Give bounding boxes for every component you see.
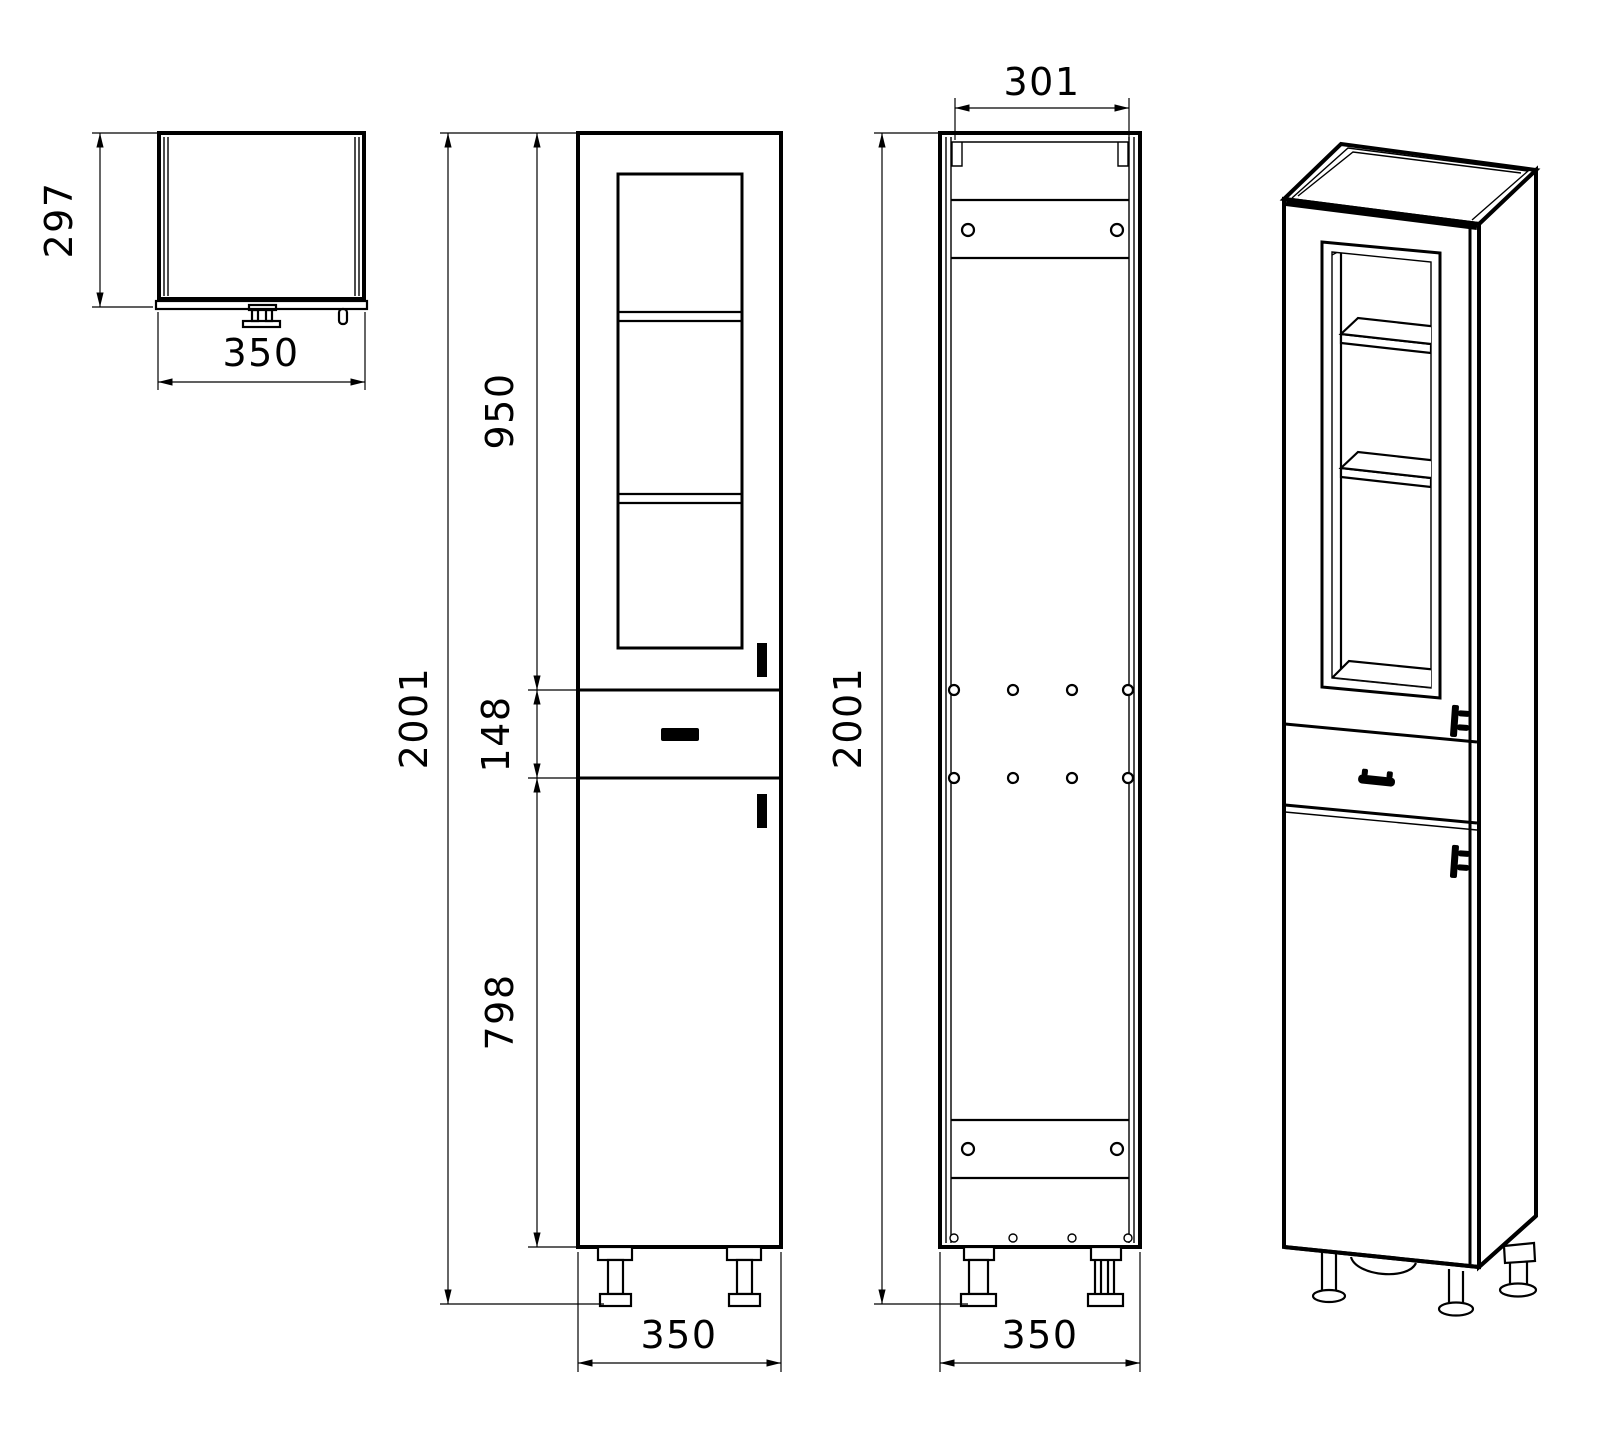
back-view-carcass: [940, 133, 1140, 1247]
back-panel-screw-holes: [949, 685, 1133, 783]
glass-door-handle: [757, 643, 767, 677]
dim-label-798: 798: [478, 973, 522, 1050]
dimension-798: 798: [478, 778, 578, 1247]
isometric-view: [1284, 144, 1536, 1316]
top-view-door-pin: [339, 309, 347, 324]
back-view-side-walls: [946, 137, 1134, 1243]
dim-label-2001-back: 2001: [826, 667, 870, 770]
dim-label-350-back: 350: [1001, 1313, 1078, 1357]
back-bottom-screw-holes: [950, 1234, 1132, 1242]
dimension-350-top: 350: [158, 312, 365, 390]
drawing-sheet: 297 350: [0, 0, 1600, 1445]
cabinet-technical-drawing: 297 350: [0, 0, 1600, 1445]
dim-label-148: 148: [474, 695, 518, 772]
back-view-legs: [961, 1247, 1123, 1306]
dim-label-2001-front: 2001: [392, 667, 436, 770]
back-corner-notch-left: [952, 142, 962, 166]
iso-side-face: [1479, 170, 1536, 1267]
front-view: 2001 950 148 798 350: [392, 133, 781, 1372]
dim-label-350-front: 350: [640, 1313, 717, 1357]
dimension-297: 297: [37, 133, 157, 307]
drawer-handle: [661, 728, 699, 741]
front-view-legs: [598, 1247, 761, 1306]
lower-door-handle: [757, 794, 767, 828]
dim-label-950: 950: [478, 372, 522, 449]
back-top-rail: [951, 200, 1129, 258]
dim-label-350-top: 350: [222, 331, 299, 375]
top-view-carcass-outline: [159, 133, 364, 299]
dim-label-297: 297: [37, 181, 81, 258]
top-view-side-walls: [164, 137, 359, 296]
back-view: 301 2001 350: [826, 60, 1140, 1372]
dimension-301: 301: [955, 60, 1129, 140]
dim-label-301: 301: [1003, 60, 1080, 104]
top-view: 297 350: [37, 133, 367, 390]
dimension-950: 950: [478, 133, 578, 690]
back-bottom-rail: [951, 1120, 1129, 1178]
back-corner-notch-right: [1118, 142, 1128, 166]
dimension-148: 148: [474, 690, 578, 778]
glass-door-frame: [618, 174, 742, 648]
glass-door-muntins: [618, 312, 742, 503]
